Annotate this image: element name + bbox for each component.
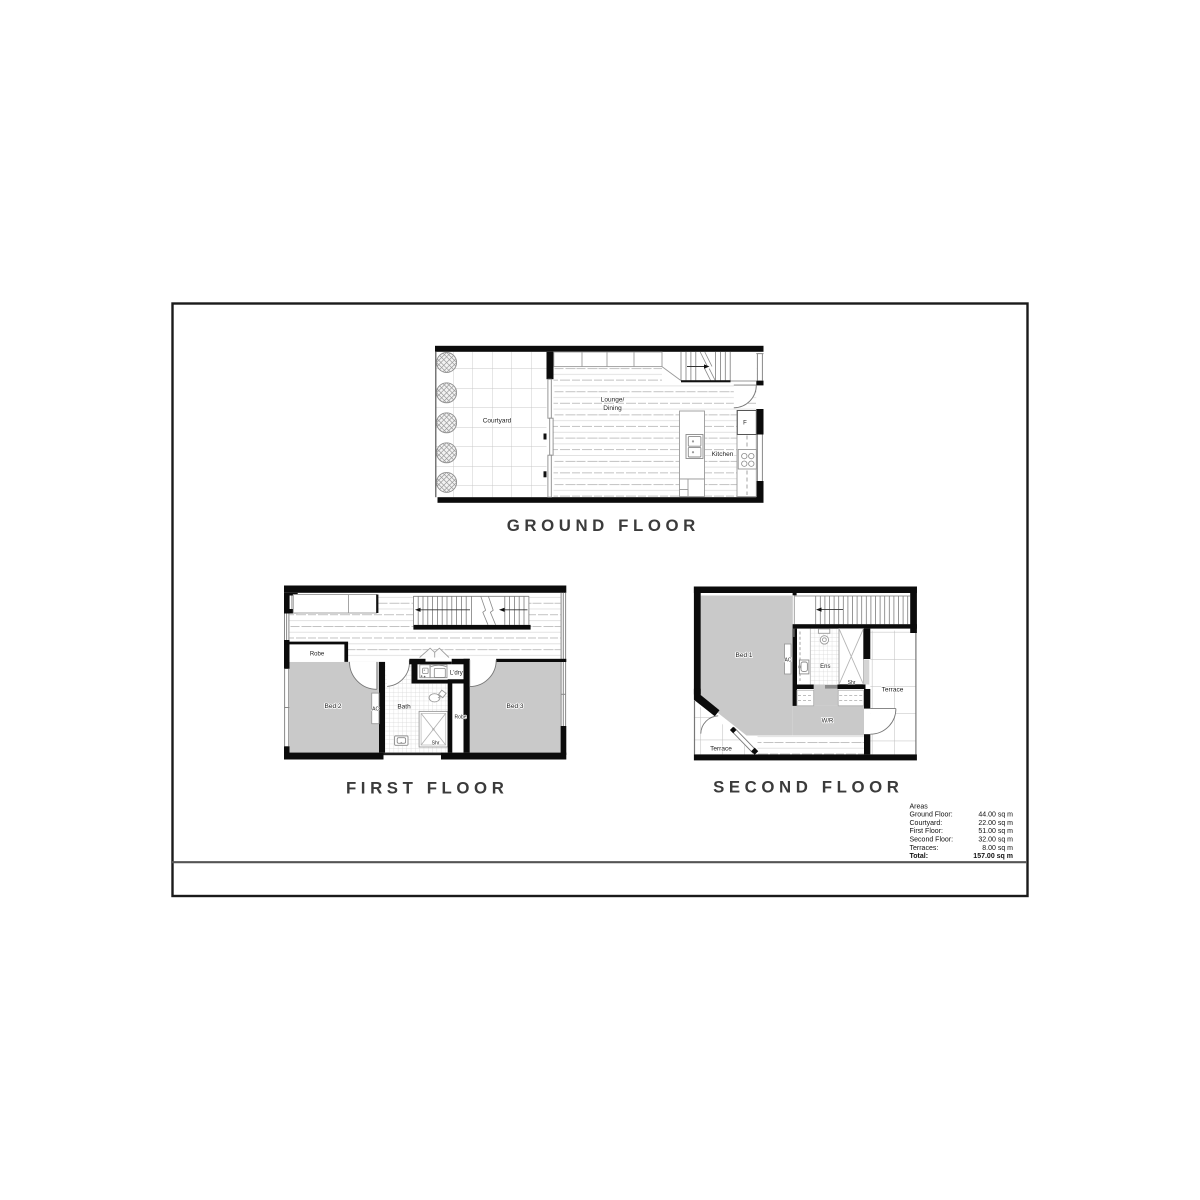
svg-text:Robe: Robe bbox=[455, 714, 467, 720]
svg-text:FIRST FLOOR: FIRST FLOOR bbox=[346, 779, 508, 798]
svg-text:51.00 sq m: 51.00 sq m bbox=[978, 828, 1013, 835]
svg-text:Terrace: Terrace bbox=[882, 687, 904, 694]
svg-text:Bath: Bath bbox=[397, 704, 411, 711]
svg-text:Bed 2: Bed 2 bbox=[325, 703, 342, 710]
svg-text:Kitchen: Kitchen bbox=[712, 451, 734, 458]
svg-text:Terraces:: Terraces: bbox=[910, 845, 939, 852]
svg-text:32.00 sq m: 32.00 sq m bbox=[978, 837, 1013, 844]
svg-text:Dining: Dining bbox=[603, 405, 622, 412]
svg-text:8.00 sq m: 8.00 sq m bbox=[982, 845, 1013, 852]
svg-text:Lounge/: Lounge/ bbox=[601, 396, 625, 403]
svg-text:L'dry: L'dry bbox=[450, 671, 463, 677]
svg-text:AC: AC bbox=[372, 706, 379, 712]
svg-text:Bed 3: Bed 3 bbox=[507, 703, 524, 710]
svg-text:Total:: Total: bbox=[910, 853, 929, 860]
svg-text:22.00 sq m: 22.00 sq m bbox=[978, 820, 1013, 827]
svg-text:Bed 1: Bed 1 bbox=[736, 652, 753, 659]
svg-text:Shr: Shr bbox=[432, 741, 440, 747]
svg-text:Terrace: Terrace bbox=[710, 746, 732, 753]
svg-text:44.00 sq m: 44.00 sq m bbox=[978, 812, 1013, 819]
svg-text:Courtyard:: Courtyard: bbox=[910, 820, 943, 827]
svg-text:157.00 sq m: 157.00 sq m bbox=[973, 853, 1013, 860]
svg-text:GROUND FLOOR: GROUND FLOOR bbox=[507, 516, 700, 535]
svg-text:Ens: Ens bbox=[820, 664, 830, 670]
svg-text:Second Floor:: Second Floor: bbox=[910, 837, 954, 844]
svg-text:F: F bbox=[743, 421, 747, 427]
svg-text:AC: AC bbox=[785, 657, 792, 663]
svg-text:First Floor:: First Floor: bbox=[910, 828, 944, 835]
svg-text:Ground Floor:: Ground Floor: bbox=[910, 812, 953, 819]
svg-text:Courtyard: Courtyard bbox=[483, 418, 512, 425]
svg-text:Robe: Robe bbox=[310, 652, 325, 658]
svg-text:Areas: Areas bbox=[910, 803, 929, 810]
svg-text:SECOND FLOOR: SECOND FLOOR bbox=[713, 778, 903, 797]
svg-text:W/R: W/R bbox=[822, 719, 834, 725]
